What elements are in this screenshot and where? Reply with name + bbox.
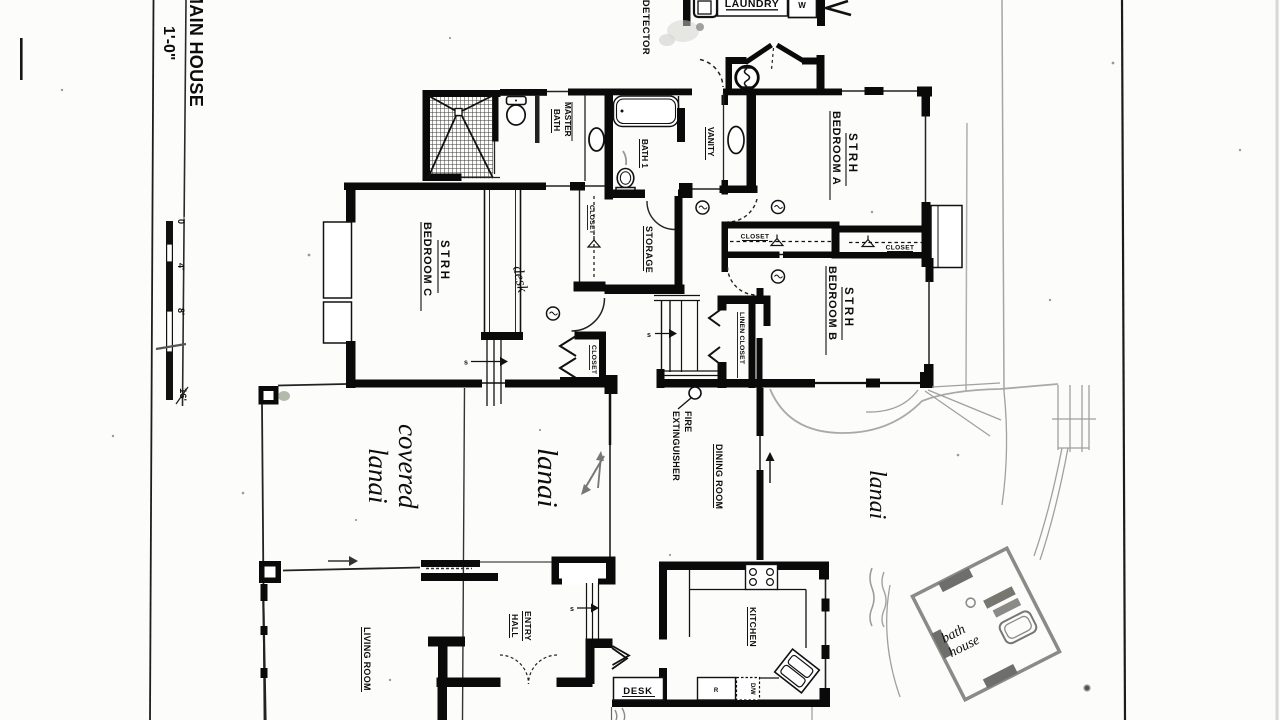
svg-text:STRH: STRH [438,240,450,282]
svg-text:R: R [714,688,719,694]
svg-text:STORAGE: STORAGE [644,226,654,273]
svg-text:0: 0 [176,219,186,224]
svg-text:lanai: lanai [531,448,563,508]
svg-text:W: W [798,1,806,10]
svg-text:STRH: STRH [846,133,858,175]
svg-text:CLOSET: CLOSET [588,205,595,235]
svg-text:BATH: BATH [552,109,561,131]
svg-text:lanai: lanai [864,470,890,519]
svg-text:8': 8' [176,308,186,315]
svg-text:EXTINGUISHER: EXTINGUISHER [671,411,681,481]
svg-text:DESK: DESK [623,686,653,697]
svg-text:CLOSET: CLOSET [741,234,770,241]
svg-text:D/W: D/W [749,683,755,695]
svg-text:s: s [464,360,468,367]
svg-text:CLOSET: CLOSET [886,245,915,252]
svg-text:lanai: lanai [363,448,393,504]
svg-text:LIVING ROOM: LIVING ROOM [362,627,372,691]
svg-text:BEDROOM C: BEDROOM C [421,222,433,297]
svg-text:LINEN CLOSET: LINEN CLOSET [738,312,745,365]
svg-text:BEDROOM A: BEDROOM A [830,111,842,185]
svg-text:BEDROOM B: BEDROOM B [826,266,838,341]
svg-text:4': 4' [176,263,186,270]
svg-text:ENTRY: ENTRY [523,611,533,641]
svg-text:MASTER: MASTER [563,102,572,137]
svg-text:CLOSET: CLOSET [590,345,597,375]
svg-text:s: s [647,332,651,339]
svg-text:MAIN HOUSE: MAIN HOUSE [186,0,206,107]
svg-text:FIRE: FIRE [683,411,693,432]
svg-text:DINING ROOM: DINING ROOM [714,444,724,509]
svg-text:VANITY: VANITY [706,127,715,157]
svg-text:E DETECTOR: E DETECTOR [640,0,651,55]
svg-text:1'-0": 1'-0" [160,26,177,61]
svg-text:LAUNDRY: LAUNDRY [725,0,779,10]
svg-text:BATH 1: BATH 1 [640,139,649,168]
svg-text:KITCHEN: KITCHEN [748,607,758,647]
svg-text:covered: covered [393,424,423,509]
svg-text:s: s [570,606,574,613]
svg-text:STRH: STRH [842,287,854,329]
svg-text:HALL: HALL [510,614,520,638]
